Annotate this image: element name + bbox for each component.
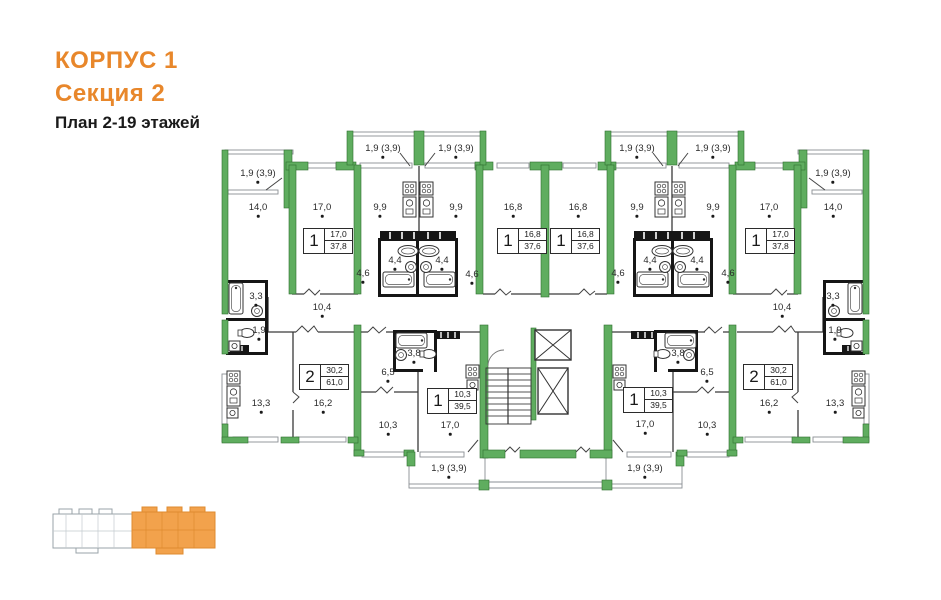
keyplan-section-1 (53, 509, 132, 553)
sink-icon (421, 262, 432, 273)
washing-machine-icon (614, 380, 625, 390)
stove-icon (466, 365, 479, 378)
sink-icon (829, 306, 840, 317)
kitchen-appliance-icon (403, 197, 416, 217)
kitchen-appliance-icon (672, 197, 685, 217)
toilet-icon (837, 329, 853, 338)
building-title: КОРПУС 1 (55, 44, 200, 77)
sink-icon (396, 350, 407, 361)
bathtub-icon (383, 272, 414, 287)
stove-icon (672, 182, 685, 195)
plan-subtitle: План 2-19 этажей (55, 110, 200, 136)
sink-icon (673, 246, 693, 257)
kitchen-appliance-icon (655, 197, 668, 217)
kitchen-appliance-icon (852, 386, 865, 406)
stove-icon (852, 371, 865, 384)
section-title: Секция 2 (55, 77, 200, 110)
sink-icon (660, 262, 671, 273)
bathtub-icon (424, 272, 455, 287)
floorplan-page: КОРПУС 1 Секция 2 План 2-19 этажей (0, 0, 941, 600)
elevator-icon (535, 330, 571, 414)
toilet-icon (420, 350, 436, 359)
sink-icon (252, 306, 263, 317)
sink-icon (684, 350, 695, 361)
washing-machine-icon (851, 341, 862, 351)
keyplan-section-2 (132, 507, 215, 554)
stove-icon (613, 365, 626, 378)
stairs-icon (486, 350, 531, 424)
bathtub-icon (396, 333, 427, 348)
kitchen-appliance-icon (227, 386, 240, 406)
sink-icon (419, 246, 439, 257)
toilet-icon (238, 329, 254, 338)
toilet-icon (654, 350, 670, 359)
bathtub-icon (848, 283, 862, 314)
bathtub-icon (637, 272, 668, 287)
stove-icon (403, 182, 416, 195)
washing-machine-icon (853, 408, 864, 418)
washing-machine-icon (229, 341, 240, 351)
sink-icon (406, 262, 417, 273)
title-block: КОРПУС 1 Секция 2 План 2-19 этажей (55, 44, 200, 136)
bathtub-icon (229, 283, 243, 314)
bathtub-icon (665, 333, 696, 348)
sink-icon (652, 246, 672, 257)
sink-icon (675, 262, 686, 273)
stair-core (486, 330, 571, 424)
stove-icon (655, 182, 668, 195)
stove-icon (227, 371, 240, 384)
bathtub-icon (678, 272, 709, 287)
structural-walls (222, 131, 869, 490)
washing-machine-icon (467, 380, 478, 390)
kitchen-appliance-icon (420, 197, 433, 217)
sink-icon (398, 246, 418, 257)
washing-machine-icon (227, 408, 238, 418)
stove-icon (420, 182, 433, 195)
keyplan (53, 507, 215, 554)
